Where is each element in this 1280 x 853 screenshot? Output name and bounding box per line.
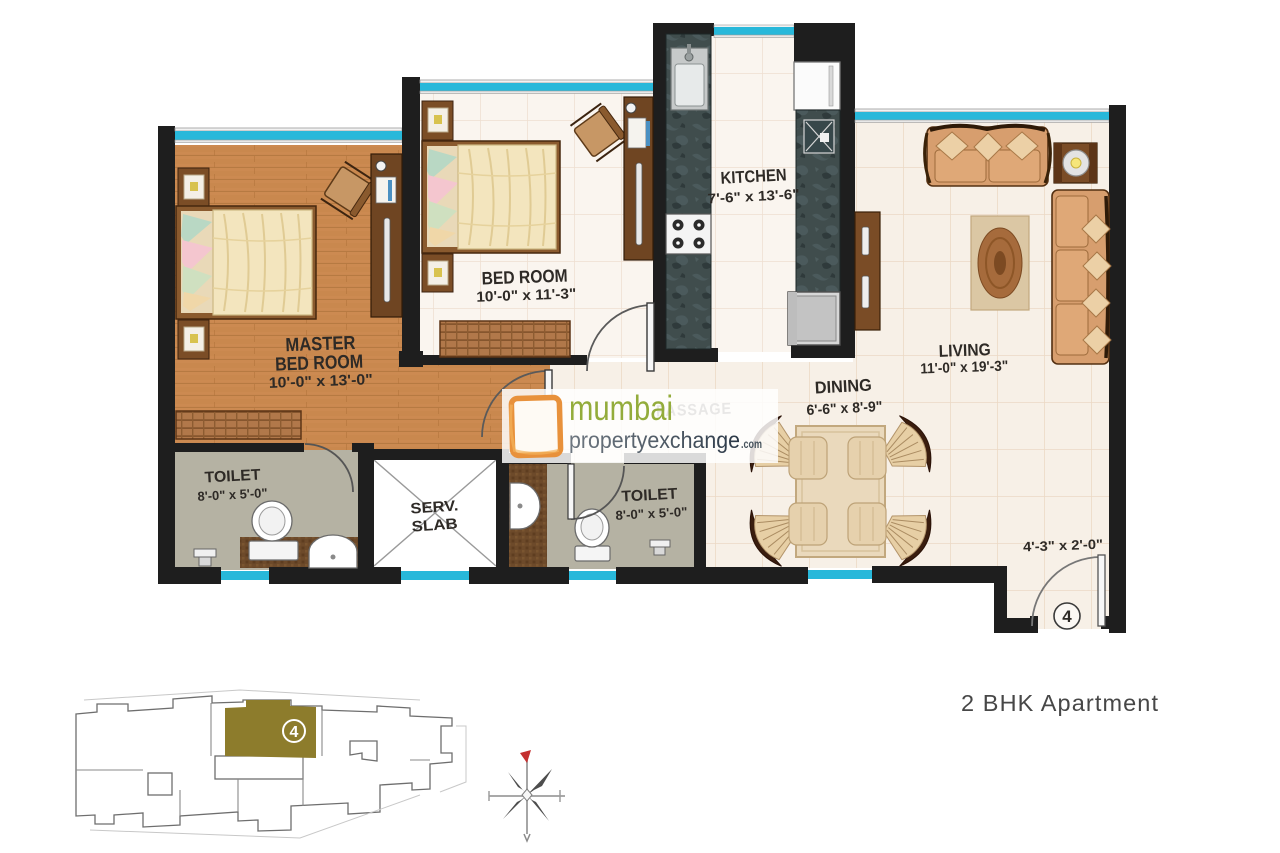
svg-text:SLAB: SLAB: [411, 515, 458, 535]
svg-text:DINING: DINING: [814, 376, 872, 398]
svg-text:KITCHEN: KITCHEN: [720, 165, 787, 187]
svg-text:4: 4: [290, 724, 299, 741]
svg-text:propertyexchange: propertyexchange: [569, 427, 740, 453]
svg-text:4'-3" x 2'-0": 4'-3" x 2'-0": [1023, 537, 1103, 555]
svg-text:10'-0" x 13'-0": 10'-0" x 13'-0": [268, 371, 373, 392]
svg-text:4: 4: [1062, 607, 1072, 626]
svg-text:LIVING: LIVING: [938, 340, 991, 361]
svg-text:.com: .com: [741, 437, 762, 451]
svg-text:TOILET: TOILET: [621, 486, 678, 506]
svg-text:mumbai: mumbai: [569, 389, 673, 428]
svg-text:11'-0" x 19'-3": 11'-0" x 19'-3": [920, 358, 1009, 377]
svg-text:BED ROOM: BED ROOM: [481, 266, 568, 289]
svg-text:2 BHK Apartment: 2 BHK Apartment: [961, 690, 1158, 716]
svg-text:SERV.: SERV.: [410, 497, 459, 517]
svg-text:TOILET: TOILET: [204, 467, 261, 487]
